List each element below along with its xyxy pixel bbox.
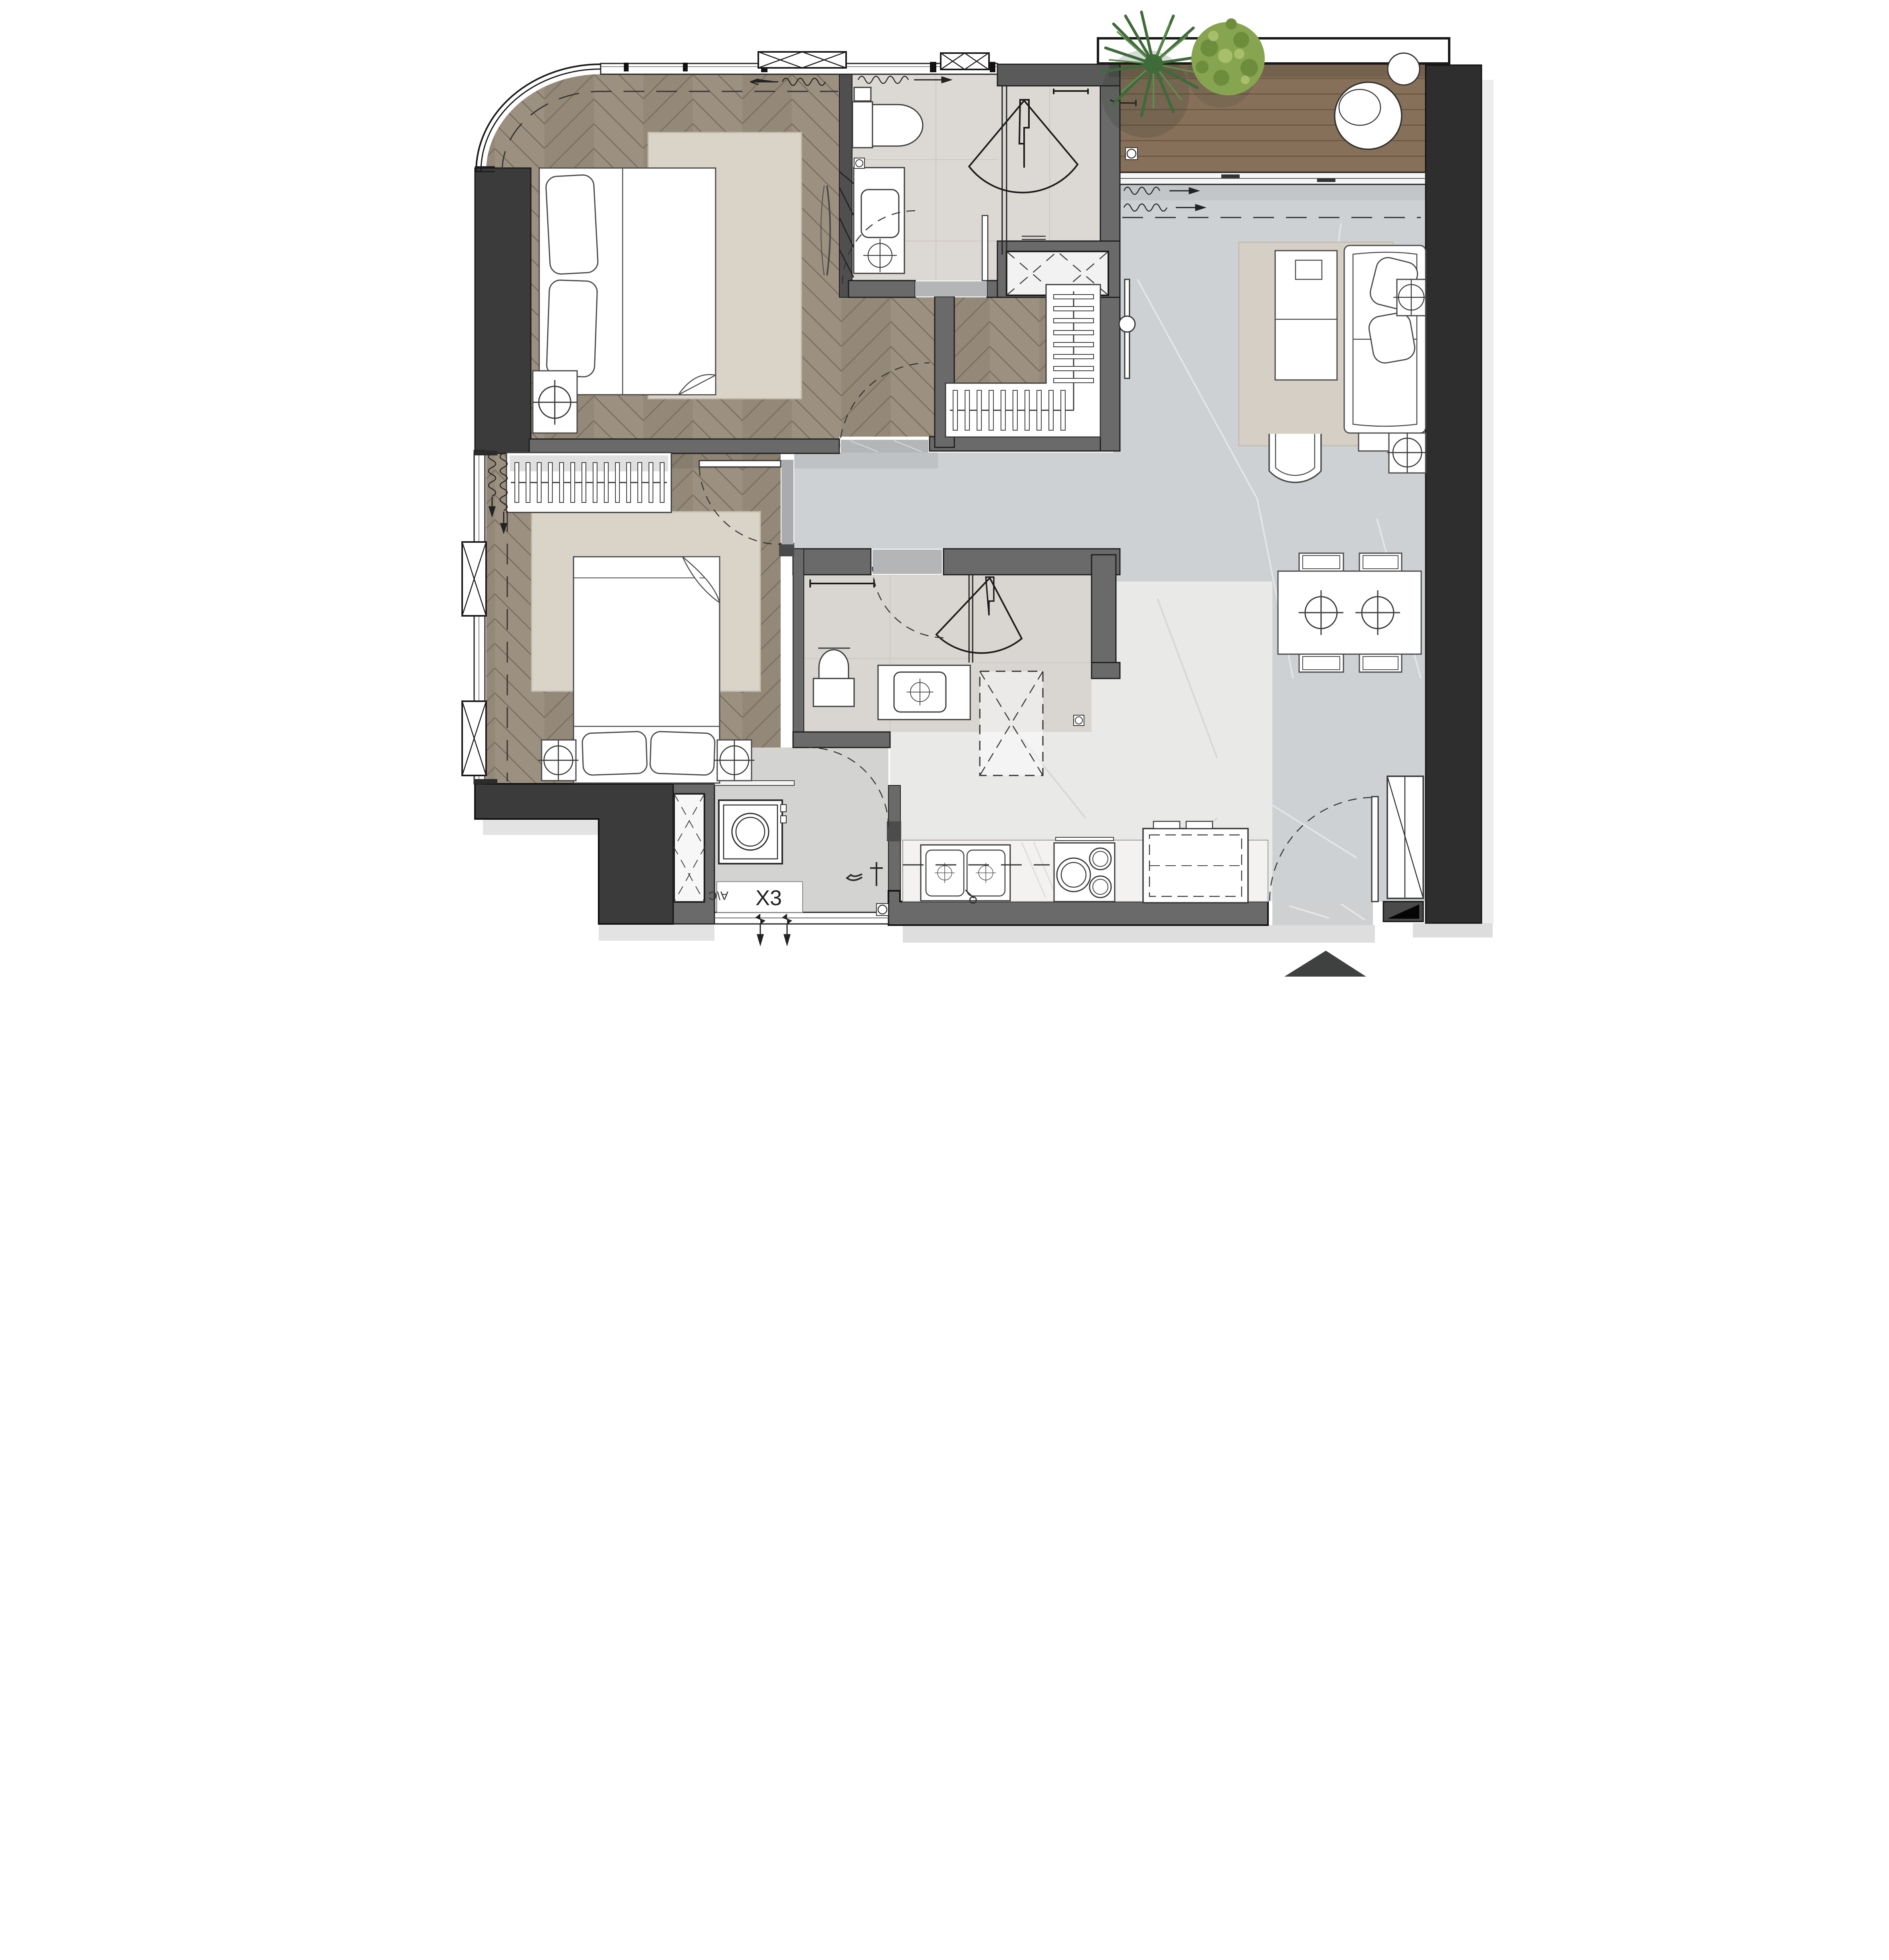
svg-text:X3: X3 (756, 886, 782, 910)
svg-text:A\C: A\C (708, 889, 728, 902)
